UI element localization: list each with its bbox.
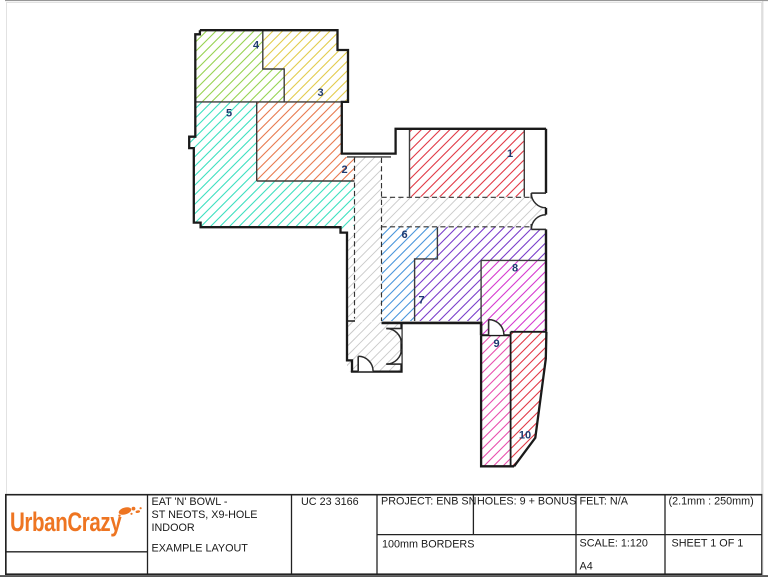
svg-text:10: 10 — [519, 430, 531, 442]
svg-text:3: 3 — [317, 87, 323, 99]
svg-text:4: 4 — [253, 40, 260, 52]
svg-text:1: 1 — [507, 148, 513, 160]
svg-text:FELT: N/A: FELT: N/A — [580, 496, 629, 508]
svg-text:HOLES: 9 + BONUS: HOLES: 9 + BONUS — [477, 496, 576, 508]
svg-text:5: 5 — [226, 108, 232, 120]
svg-text:SCALE: 1:120: SCALE: 1:120 — [580, 538, 648, 550]
svg-text:9: 9 — [493, 338, 499, 350]
svg-text:UrbanCrazy: UrbanCrazy — [10, 507, 122, 537]
svg-text:ST NEOTS, X9-HOLE: ST NEOTS, X9-HOLE — [152, 509, 258, 521]
svg-text:(2.1mm : 250mm): (2.1mm : 250mm) — [669, 496, 754, 508]
svg-text:PROJECT: ENB SN: PROJECT: ENB SN — [381, 496, 476, 508]
svg-text:EXAMPLE LAYOUT: EXAMPLE LAYOUT — [152, 543, 249, 555]
svg-text:A4: A4 — [580, 561, 593, 573]
svg-text:6: 6 — [401, 229, 407, 241]
svg-text:2: 2 — [341, 164, 347, 176]
svg-text:8: 8 — [512, 263, 518, 275]
svg-text:7: 7 — [418, 295, 424, 307]
svg-text:INDOOR: INDOOR — [152, 522, 195, 534]
svg-text:EAT 'N' BOWL -: EAT 'N' BOWL - — [152, 496, 228, 508]
svg-text:SHEET 1 OF 1: SHEET 1 OF 1 — [672, 538, 744, 550]
svg-text:100mm BORDERS: 100mm BORDERS — [382, 539, 474, 551]
svg-text:UC 23 3166: UC 23 3166 — [301, 496, 359, 508]
